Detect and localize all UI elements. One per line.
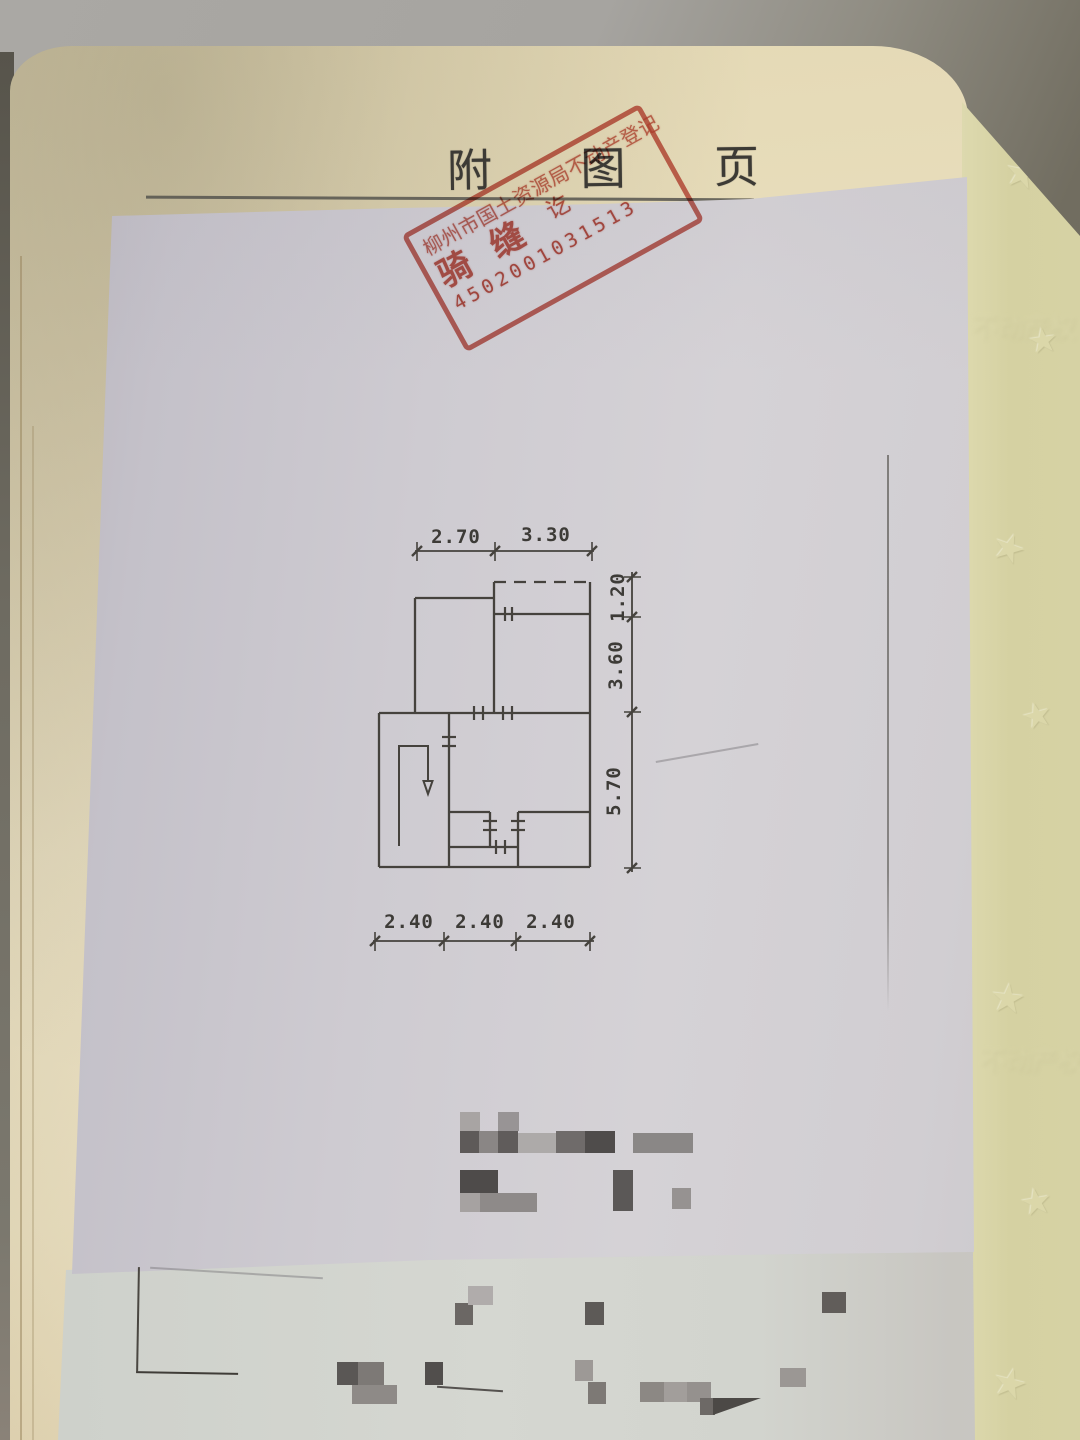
redaction-block	[460, 1170, 498, 1193]
embossed-text-watermark: 不动产权	[972, 308, 1076, 345]
bottom-dimension-line: 2.40 2.40 2.40	[370, 911, 595, 951]
redaction-block	[556, 1131, 585, 1153]
drawing-frame-line	[887, 455, 889, 1011]
redaction-block	[498, 1131, 518, 1153]
embossed-star-watermark: ★	[987, 1357, 1033, 1410]
redaction-block	[575, 1360, 593, 1381]
redaction-block	[460, 1193, 480, 1212]
redaction-block	[588, 1382, 606, 1404]
redaction-block	[518, 1133, 556, 1153]
redaction-block	[640, 1382, 664, 1402]
redaction-block	[468, 1286, 493, 1305]
staircase-symbol	[399, 746, 433, 846]
floor-plan-drawing: 2.70 3.30	[330, 500, 680, 962]
dim-label-bottom-1: 2.40	[384, 911, 434, 933]
embossed-text-watermark: 不动产权	[980, 1041, 1080, 1078]
redaction-block	[358, 1362, 384, 1385]
redaction-block	[585, 1302, 604, 1325]
redaction-block	[664, 1382, 687, 1402]
redaction-block	[613, 1170, 633, 1211]
dim-label-top-2: 3.30	[521, 524, 571, 546]
dim-label-bottom-3: 2.40	[526, 911, 576, 933]
redaction-block	[633, 1133, 693, 1153]
embossed-star-watermark: ★	[985, 522, 1032, 576]
dim-label-right-3: 5.70	[603, 766, 625, 816]
redaction-block	[479, 1131, 498, 1153]
corner-bracket-mark	[136, 1267, 240, 1375]
floor-plan-walls	[379, 582, 590, 867]
right-dimension-line: 1.20 3.60 5.70	[603, 572, 641, 873]
redaction-block	[480, 1193, 537, 1212]
dim-label-bottom-2: 2.40	[455, 911, 505, 933]
dim-label-right-2: 3.60	[605, 640, 627, 690]
redaction-block	[337, 1362, 358, 1385]
page-stack-edge-line	[32, 426, 34, 1440]
redaction-block	[780, 1368, 806, 1387]
embossed-star-watermark: ★	[988, 974, 1028, 1023]
redaction-block	[425, 1362, 443, 1385]
redaction-block	[585, 1131, 615, 1153]
page-stack-edge-line	[20, 256, 22, 1440]
redaction-block	[498, 1112, 519, 1131]
embossed-star-watermark: ★	[1017, 693, 1057, 740]
redaction-block	[700, 1398, 715, 1415]
embossed-star-watermark: ★	[1000, 148, 1045, 200]
redaction-block	[460, 1131, 479, 1153]
top-dimension-line: 2.70 3.30	[412, 524, 597, 561]
dim-label-top-1: 2.70	[431, 526, 481, 548]
booklet-right-page: ★ ★ 不动产权 ★ ★ ★ 不动产权 ★ ★	[962, 96, 1080, 1440]
window-door-ticks	[442, 607, 525, 854]
dim-label-right-1: 1.20	[607, 572, 629, 622]
redaction-block	[455, 1303, 473, 1325]
certificate-photo: ★ ★ 不动产权 ★ ★ ★ 不动产权 ★ ★ 附 图 页 2.70 3.30	[0, 0, 1080, 1440]
embossed-star-watermark: ★	[1017, 1179, 1056, 1226]
redaction-block	[822, 1292, 846, 1313]
redaction-block	[672, 1188, 691, 1209]
redaction-block	[352, 1385, 397, 1404]
redaction-block	[460, 1112, 480, 1131]
